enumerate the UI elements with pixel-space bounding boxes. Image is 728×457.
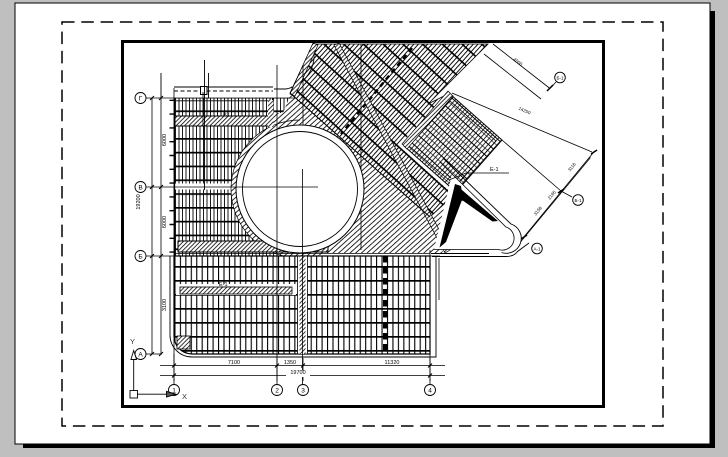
- svg-text:3: 3: [301, 388, 305, 395]
- svg-text:6000: 6000: [162, 134, 168, 146]
- svg-text:19200: 19200: [136, 194, 142, 209]
- svg-text:Б-1: Б-1: [557, 76, 564, 81]
- svg-text:3100: 3100: [162, 299, 168, 311]
- svg-text:Е-1: Е-1: [490, 167, 499, 173]
- svg-text:А-1: А-1: [533, 247, 541, 252]
- svg-text:Г: Г: [139, 96, 143, 103]
- svg-text:2: 2: [275, 388, 279, 395]
- svg-text:X: X: [182, 392, 187, 401]
- svg-text:19700: 19700: [290, 370, 305, 376]
- svg-text:1350: 1350: [284, 360, 296, 366]
- svg-text:А: А: [138, 352, 143, 359]
- svg-text:Е-1: Е-1: [219, 282, 228, 288]
- svg-text:В: В: [138, 185, 142, 192]
- svg-text:4: 4: [428, 388, 432, 395]
- svg-text:6000: 6000: [162, 216, 168, 228]
- svg-text:11320: 11320: [385, 360, 400, 366]
- svg-text:Р3: Р3: [223, 113, 229, 119]
- svg-text:Б-1: Б-1: [575, 198, 582, 203]
- svg-text:Б: Б: [138, 254, 142, 261]
- svg-text:7100: 7100: [228, 360, 240, 366]
- svg-text:Y: Y: [130, 337, 135, 346]
